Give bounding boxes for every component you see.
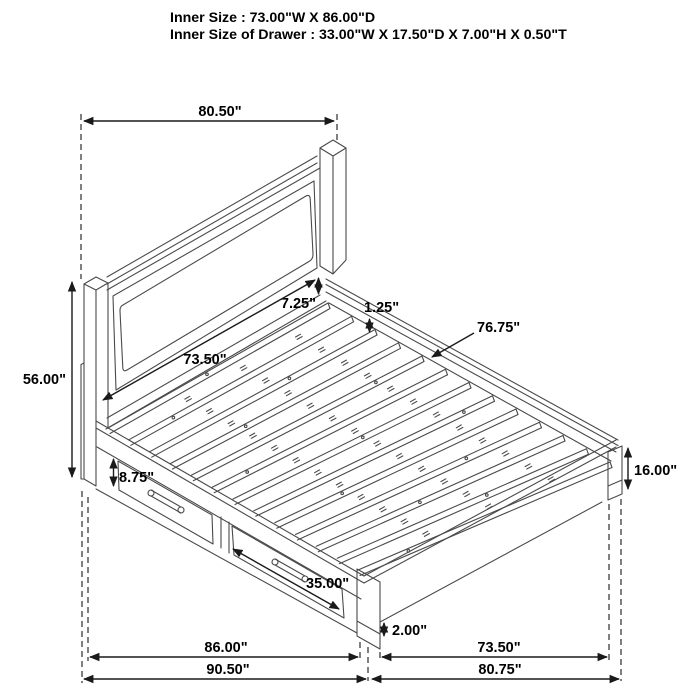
dim-label-rail-cap-thickness: 1.25" bbox=[364, 300, 399, 316]
screw-dot bbox=[244, 425, 247, 428]
screw-dot bbox=[172, 416, 175, 419]
screw-dot bbox=[362, 436, 365, 439]
headboard bbox=[81, 140, 346, 486]
dim-label-drawer-front-height: 8.75" bbox=[119, 470, 154, 486]
title-line-2: Inner Size of Drawer : 33.00"W X 17.50"D… bbox=[170, 27, 567, 43]
title-line-1: Inner Size : 73.00"W X 86.00"D bbox=[170, 10, 375, 26]
screw-dot bbox=[341, 492, 344, 495]
diagram-page: 80.50" 56.00" 7.25" 1.25" 76.75" 73.50" bbox=[0, 0, 700, 700]
bed-dimension-diagram: 80.50" 56.00" 7.25" 1.25" 76.75" 73.50" bbox=[0, 0, 700, 700]
dim-footboard-height: 16.00" bbox=[628, 448, 677, 489]
screw-dot bbox=[419, 501, 422, 504]
dim-inner-length: 86.00" bbox=[90, 640, 358, 657]
dim-side-rail-length: 76.75" bbox=[432, 320, 520, 357]
dim-label-drawer-width: 35.00" bbox=[306, 576, 349, 592]
dim-label-inner-length: 86.00" bbox=[204, 640, 247, 656]
bottom-extension-lines bbox=[82, 491, 621, 683]
dim-drawer-front-height: 8.75" bbox=[114, 459, 155, 486]
screw-dot bbox=[465, 457, 468, 460]
dim-label-panel-rail-gap: 7.25" bbox=[281, 296, 316, 312]
screw-dot bbox=[288, 377, 291, 380]
screw-dot bbox=[206, 373, 209, 376]
dim-label-side-rail-length: 76.75" bbox=[477, 320, 520, 336]
dim-overall-length: 90.50" bbox=[84, 662, 366, 679]
dim-drawer-width: 35.00" bbox=[233, 549, 349, 609]
slat-deck bbox=[108, 303, 612, 576]
dim-label-headboard-width: 80.50" bbox=[198, 104, 241, 120]
dim-label-headboard-height: 56.00" bbox=[23, 372, 66, 388]
dim-label-footboard-inner-width: 73.50" bbox=[477, 640, 520, 656]
leader-line bbox=[432, 333, 474, 357]
dim-label-overall-length: 90.50" bbox=[206, 662, 249, 678]
dim-label-headboard-inner-width: 73.50" bbox=[183, 352, 226, 368]
dim-label-foot-leg-height: 2.00" bbox=[392, 623, 427, 639]
dim-footboard-inner-width: 73.50" bbox=[382, 640, 607, 657]
screw-dot bbox=[246, 471, 249, 474]
dim-footboard-outer-width: 80.75" bbox=[372, 662, 619, 679]
dim-label-footboard-outer-width: 80.75" bbox=[478, 662, 521, 678]
dim-foot-leg-height: 2.00" bbox=[384, 623, 427, 639]
dim-panel-rail-gap: 7.25" bbox=[281, 278, 319, 312]
screw-dot bbox=[375, 381, 378, 384]
screw-dot bbox=[463, 411, 466, 414]
dim-headboard-width: 80.50" bbox=[81, 104, 337, 279]
bed-drawing bbox=[81, 140, 622, 649]
screw-dot bbox=[486, 494, 489, 497]
title-block: Inner Size : 73.00"W X 86.00"D Inner Siz… bbox=[170, 10, 567, 43]
dim-label-footboard-height: 16.00" bbox=[634, 463, 677, 479]
dim-headboard-height: 56.00" bbox=[23, 282, 72, 477]
